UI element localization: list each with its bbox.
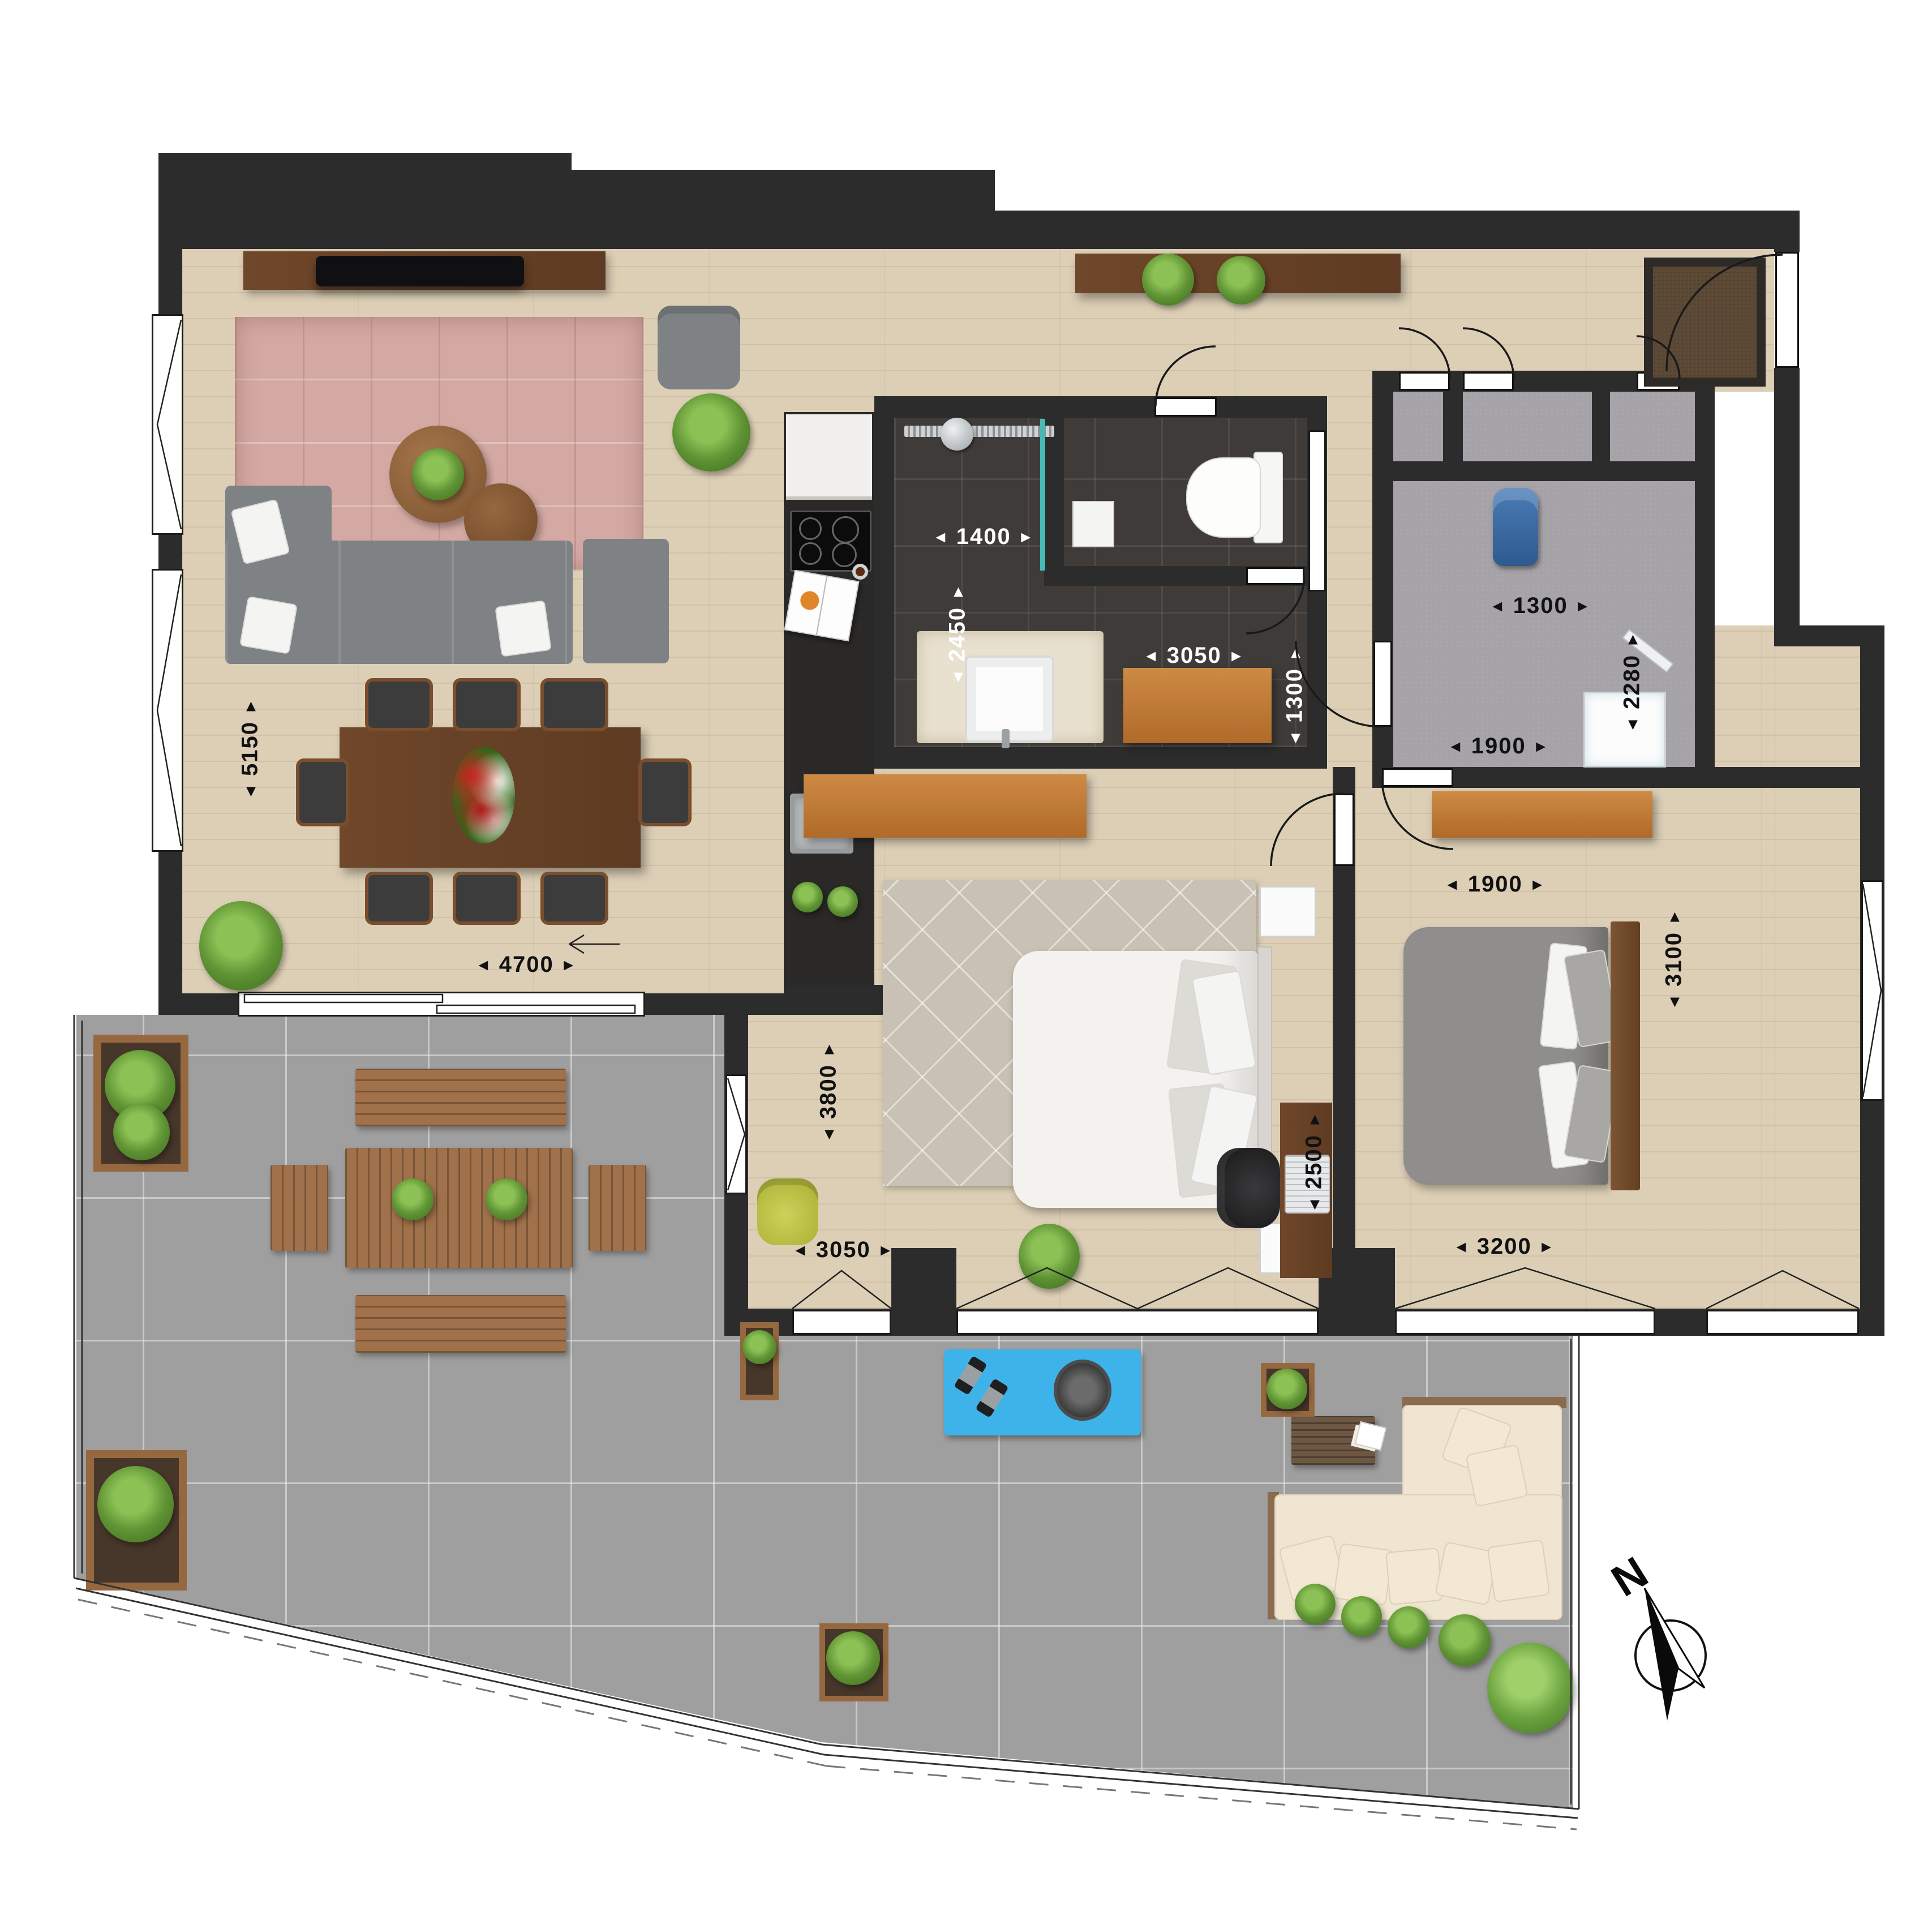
outdoor-pillow [1385,1547,1443,1605]
dining-chair [365,678,433,731]
cookbook [784,570,860,642]
window-master-south [792,1310,891,1335]
cooktop-burner [832,542,857,567]
office-chair[interactable] [1217,1148,1280,1228]
window-bedroom2-south [1395,1310,1655,1335]
dining-chair [296,758,349,826]
plant-terrace-row-2 [1341,1596,1382,1637]
plant-outdoor-table-1 [392,1178,433,1220]
door-wc[interactable] [1246,567,1304,585]
plant-coffee-table [412,448,464,500]
master-armchair[interactable] [757,1178,818,1245]
sofa-pillow-3 [495,600,552,657]
wall-right-upper [1774,368,1800,646]
vacuum-cleaner [1493,488,1538,566]
wall-top-left-block [158,153,572,249]
pier-desk [891,1248,956,1310]
dim-bed2-width: 3200 [1453,1234,1555,1259]
dim-bed2-wardrobe: 1900 [1444,872,1546,897]
plant-console-2 [1217,256,1265,305]
wall-closet-bottom [1393,461,1695,481]
door-master-bedroom[interactable] [1334,794,1354,866]
toilet-roll-box [1072,501,1114,547]
dim-bath-width: 3050 [1143,643,1245,668]
master-dresser [804,774,1087,838]
lounge-chair [658,306,740,389]
espresso-cup [852,564,868,580]
dim-master-width: 3050 [792,1237,894,1263]
closet-c-floor [1610,392,1695,461]
closet-a-floor [1393,392,1443,461]
bath-sink [965,655,1054,743]
dim-storage-bottom-width: 1900 [1448,734,1549,759]
plant-terrace-row-4 [1439,1614,1491,1666]
dim-bed2-depth: 3100 [1661,908,1687,1010]
wall-kitchen-stub [784,985,894,1015]
sofa-armchair-seat [583,539,669,663]
compass-north-label: N [1603,1547,1656,1606]
bedroom2-wardrobe [1432,791,1652,838]
plant-living-corner [199,901,283,991]
closet-b-floor [1463,392,1592,461]
tv [316,256,524,286]
outdoor-bench-bottom [355,1295,566,1353]
plant-terrace-row-1 [1295,1584,1336,1624]
toilet-bowl[interactable] [1186,457,1261,538]
window-living-west-2 [152,569,183,852]
dining-chair [540,872,608,925]
plant-living-east [672,393,750,471]
wall-storage-east [1695,371,1715,767]
dim-storage-width: 1300 [1489,593,1591,619]
plant-master [1019,1224,1080,1289]
wall-top-mid [570,170,995,249]
dining-chair [638,758,692,826]
wood-floor-bedroom2-east [1774,646,1860,1309]
dining-flowers [453,747,515,843]
outdoor-bench-top [355,1069,566,1126]
plant-terrace-row-3 [1388,1606,1429,1648]
door-entrance[interactable] [1775,252,1799,368]
dining-chair [365,872,433,925]
wall-closet-div1 [1443,392,1463,461]
outdoor-pillow [1465,1444,1528,1507]
nightstand-top [1259,886,1316,937]
planter-mat-plant [742,1330,776,1364]
dim-master-depth: 3800 [816,1040,842,1142]
dim-living-depth: 5150 [238,697,263,799]
window-bedroom2-east [1861,880,1883,1101]
bedroom2-bed [1403,921,1644,1190]
outdoor-pillow [1487,1540,1551,1603]
plant-console-1 [1142,254,1194,306]
outdoor-chair-right [589,1165,646,1251]
window-bath-east [1308,430,1326,591]
planter-sofa-plant [1266,1369,1307,1409]
wall-top-right [993,211,1800,249]
window-bedrooms-south-1 [956,1310,1319,1335]
dining-chair [453,872,521,925]
door-closet-a[interactable] [1399,372,1450,391]
wall-bath-south [874,747,1327,769]
wall-right-stub [1774,231,1800,252]
planter-nw-plant2 [113,1104,170,1160]
window-master-west [725,1074,747,1194]
shower-glass-teal [1040,419,1045,571]
herb-pot-2 [827,886,858,917]
floor-plan: 5150 4700 1400 2450 3050 1300 1300 2280 … [0,0,1932,1912]
door-bedroom2[interactable] [1382,768,1453,787]
sliding-door-living[interactable] [238,992,645,1017]
door-closet-b[interactable] [1463,372,1514,391]
window-living-west-1 [152,314,183,535]
wall-closet-div2 [1592,392,1610,461]
door-storage[interactable] [1373,641,1392,727]
entrance-doormat [1644,258,1766,387]
shower-mixer [941,418,973,451]
planter-sw-plant [97,1466,174,1542]
cooktop-burner [832,516,859,543]
bath-faucet [1002,729,1010,748]
dim-bath-right-depth: 1300 [1282,644,1308,746]
outdoor-chair-left [271,1165,328,1251]
herb-pot-1 [792,882,823,912]
wall-wc-west [1044,418,1064,586]
dining-chair [453,678,521,731]
meditation-cushion [1054,1360,1111,1421]
compass-circle [1635,1621,1706,1691]
dim-living-width: 4700 [475,952,577,978]
bed2-headboard [1611,921,1640,1190]
wall-bath-west [874,418,894,747]
wall-step [1774,625,1884,646]
outdoor-table [345,1148,573,1268]
door-bathroom[interactable] [1154,397,1217,417]
window-bedroom2-south-2 [1706,1310,1859,1335]
kitchen-cabinets [786,414,872,500]
dim-storage-depth: 2280 [1620,631,1645,732]
shower-drain [904,426,1054,437]
cooktop-burner [799,542,822,565]
dim-shower-width: 1400 [933,524,1034,550]
dining-chair [540,678,608,731]
north-compass: N [1603,1547,1706,1721]
wall-bath-north [874,396,1327,418]
plant-fiddle-leaf [1487,1643,1573,1733]
compass-needle-filled [1645,1588,1678,1721]
dim-master-nook: 2500 [1302,1111,1327,1212]
cooktop-burner [799,517,822,540]
shaft-void [1715,392,1774,625]
compass-needle-outline [1645,1588,1705,1688]
sofa-pillow-2 [239,596,298,654]
plant-outdoor-table-2 [486,1178,527,1220]
dim-bath-depth: 2450 [945,583,971,685]
planter-south-plant [826,1631,880,1685]
bath-bench [1123,668,1272,743]
